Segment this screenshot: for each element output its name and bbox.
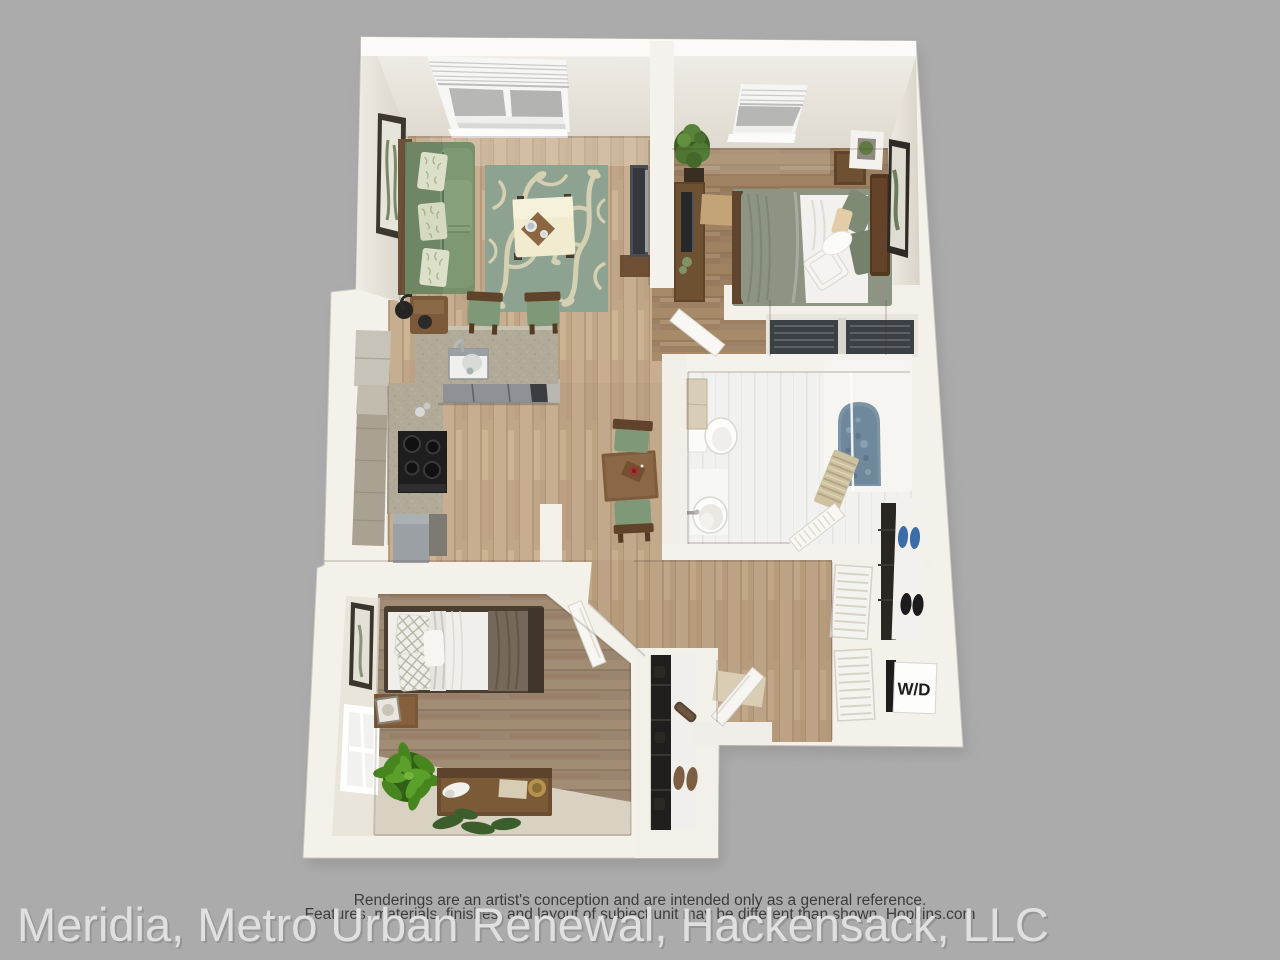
svg-text:W/D: W/D bbox=[897, 679, 931, 699]
svg-text:Meridia, Metro Urban Renewal,: Meridia, Metro Urban Renewal, Hackensack… bbox=[17, 898, 1049, 951]
